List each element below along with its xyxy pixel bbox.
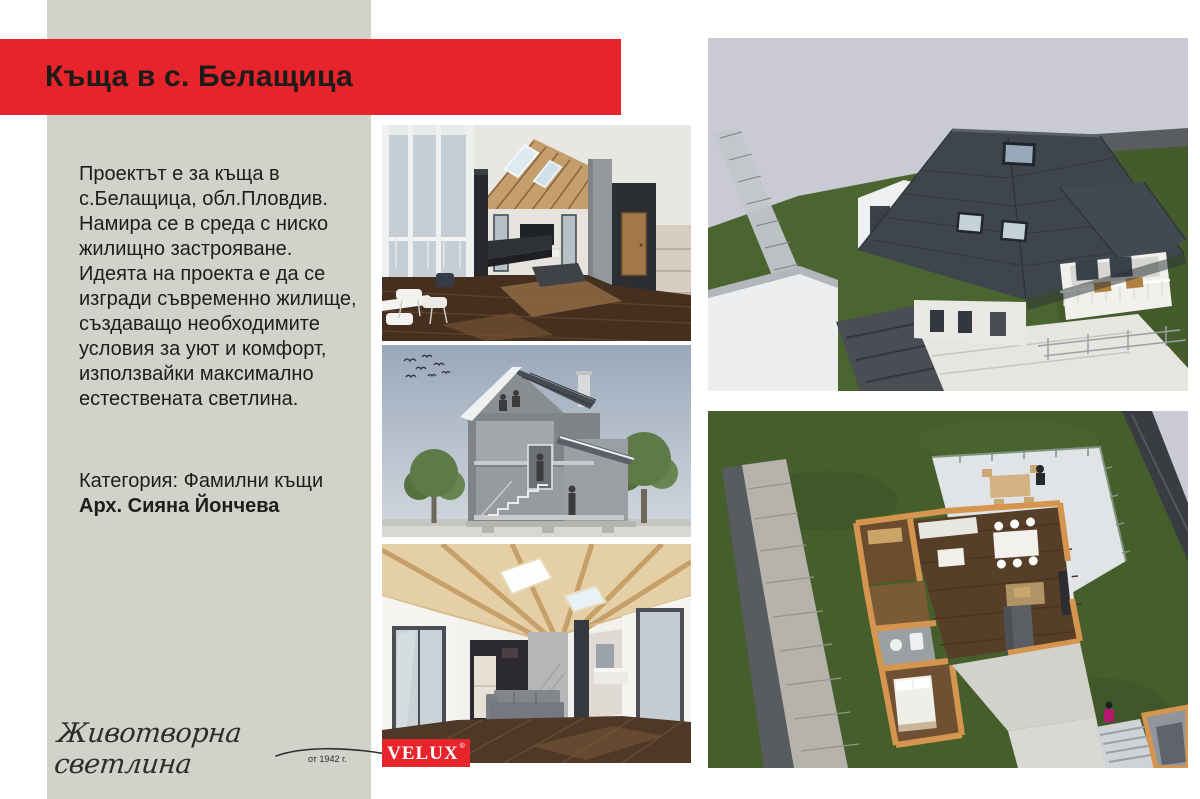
floor-plan-render	[708, 411, 1188, 768]
project-description: Проектът е за къща в с.Белащица, обл.Пло…	[79, 162, 371, 412]
exterior-render	[708, 38, 1188, 391]
category-label: Категория: Фамилни къщи	[79, 469, 323, 494]
figure-section	[382, 345, 691, 537]
registered-mark-icon: ®	[460, 743, 465, 750]
bed	[893, 675, 936, 732]
figure-exterior	[708, 38, 1188, 391]
velux-wordmark: VELUX	[387, 744, 459, 763]
architect-name: Арх. Сияна Йончева	[79, 494, 323, 519]
title-banner: Къща в с. Белащица	[0, 39, 621, 115]
figure-interior-bottom: HOME	[382, 544, 691, 763]
brand-slogan: Животворна светлина от 1942 г.	[56, 718, 356, 780]
since-1942-label: от 1942 г.	[308, 754, 347, 764]
interior-top-render	[382, 125, 691, 341]
interior-bottom-render: HOME	[382, 544, 691, 763]
page-title: Къща в с. Белащица	[45, 60, 353, 94]
credits-block: Категория: Фамилни къщи Арх. Сияна Йонче…	[79, 469, 323, 519]
slide: Къща в с. Белащица Проектът е за къща в …	[0, 0, 1200, 799]
section-drawing	[382, 345, 691, 537]
velux-logo: VELUX ®	[382, 739, 470, 767]
figure-interior-top	[382, 125, 691, 341]
figure-floor-plan	[708, 411, 1188, 768]
dining-set	[992, 517, 1039, 569]
